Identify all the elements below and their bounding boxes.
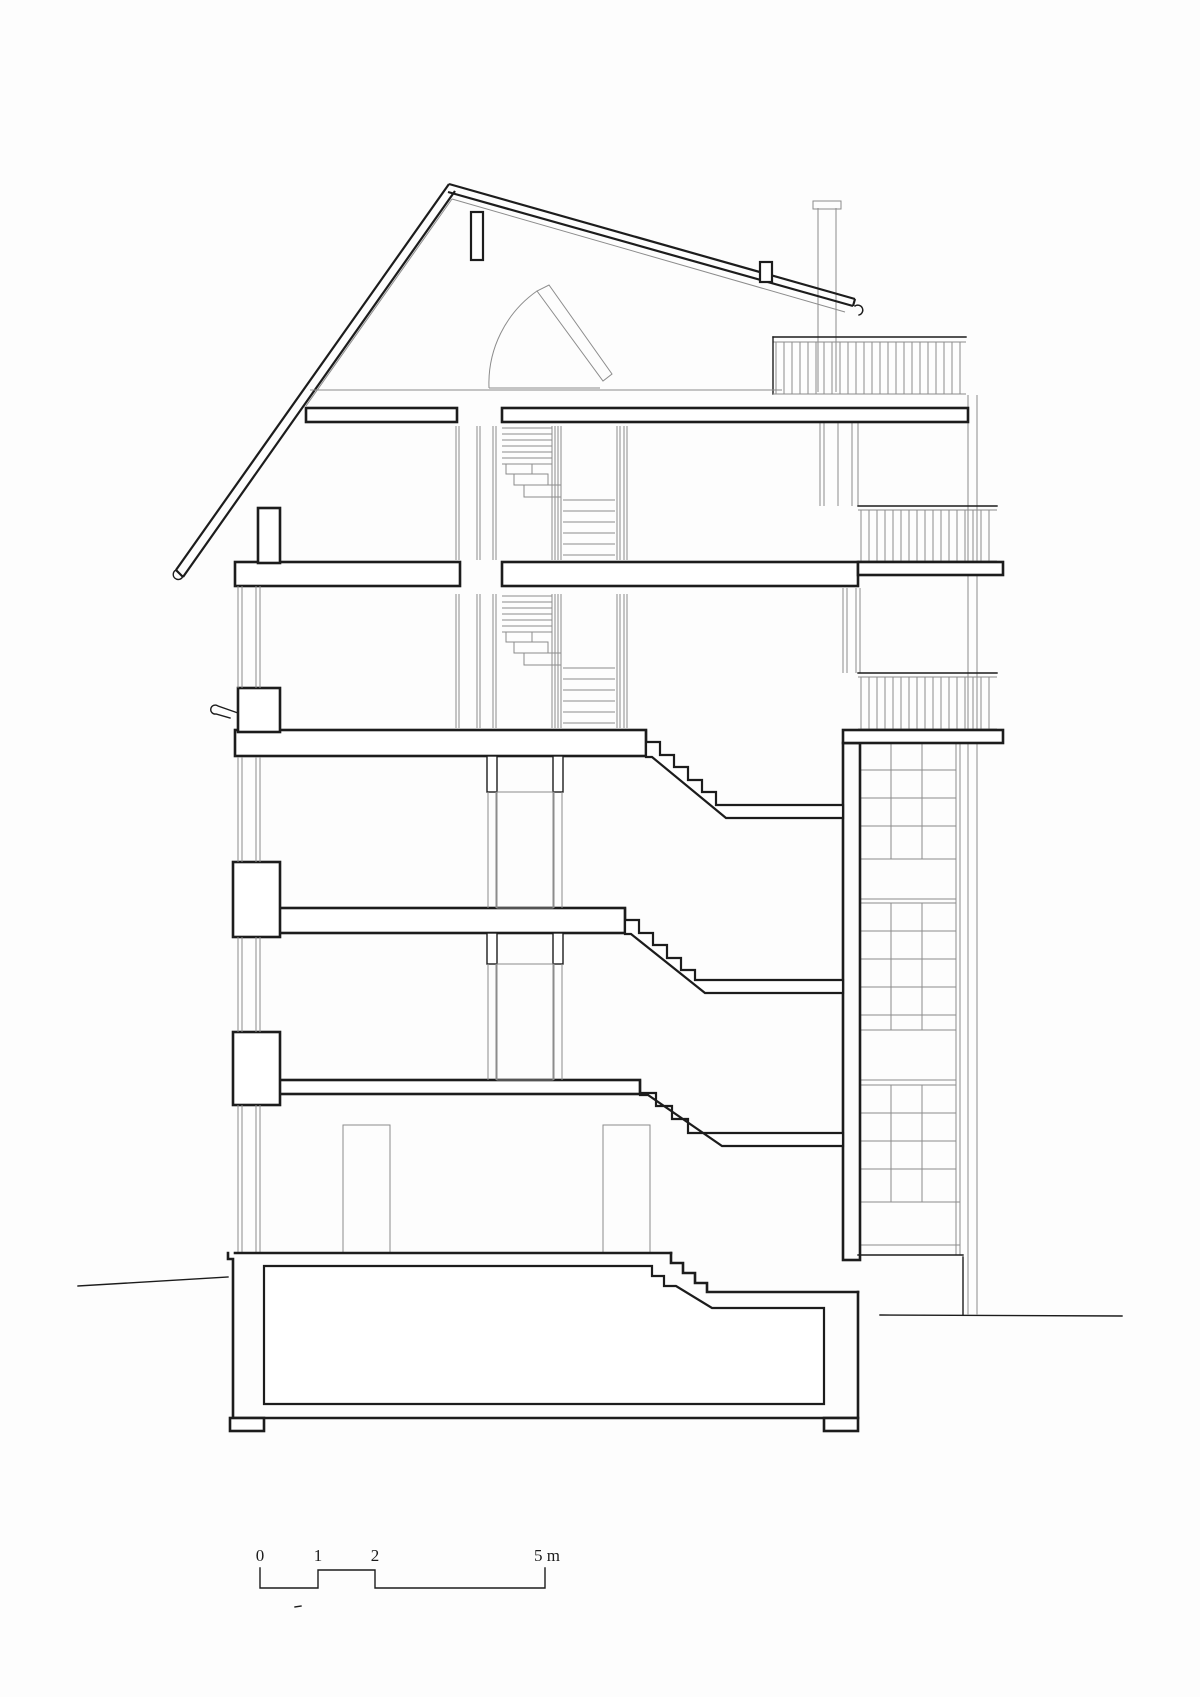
door-openings	[343, 756, 650, 1253]
balcony-middle	[858, 506, 997, 561]
scale-bar: 0 1 2 5 m	[256, 1546, 560, 1607]
balcony-lower	[858, 673, 997, 729]
attic-hatch-door	[489, 285, 612, 388]
split-level-stairs	[625, 730, 843, 1146]
floor-slabs	[235, 408, 1003, 1094]
scale-label-5m: 5 m	[534, 1546, 560, 1565]
balcony-top	[773, 337, 966, 394]
left-wall	[211, 508, 280, 1253]
glazing-facade	[858, 743, 963, 1315]
scale-label-2: 2	[371, 1546, 380, 1565]
drawing-sheet: 0 1 2 5 m	[0, 0, 1200, 1697]
scale-label-0: 0	[256, 1546, 265, 1565]
basement	[228, 1253, 858, 1431]
winder-stair-upper	[456, 426, 627, 560]
section-drawing: 0 1 2 5 m	[0, 0, 1200, 1697]
scale-label-1: 1	[314, 1546, 323, 1565]
winder-stair-lower	[456, 594, 627, 728]
